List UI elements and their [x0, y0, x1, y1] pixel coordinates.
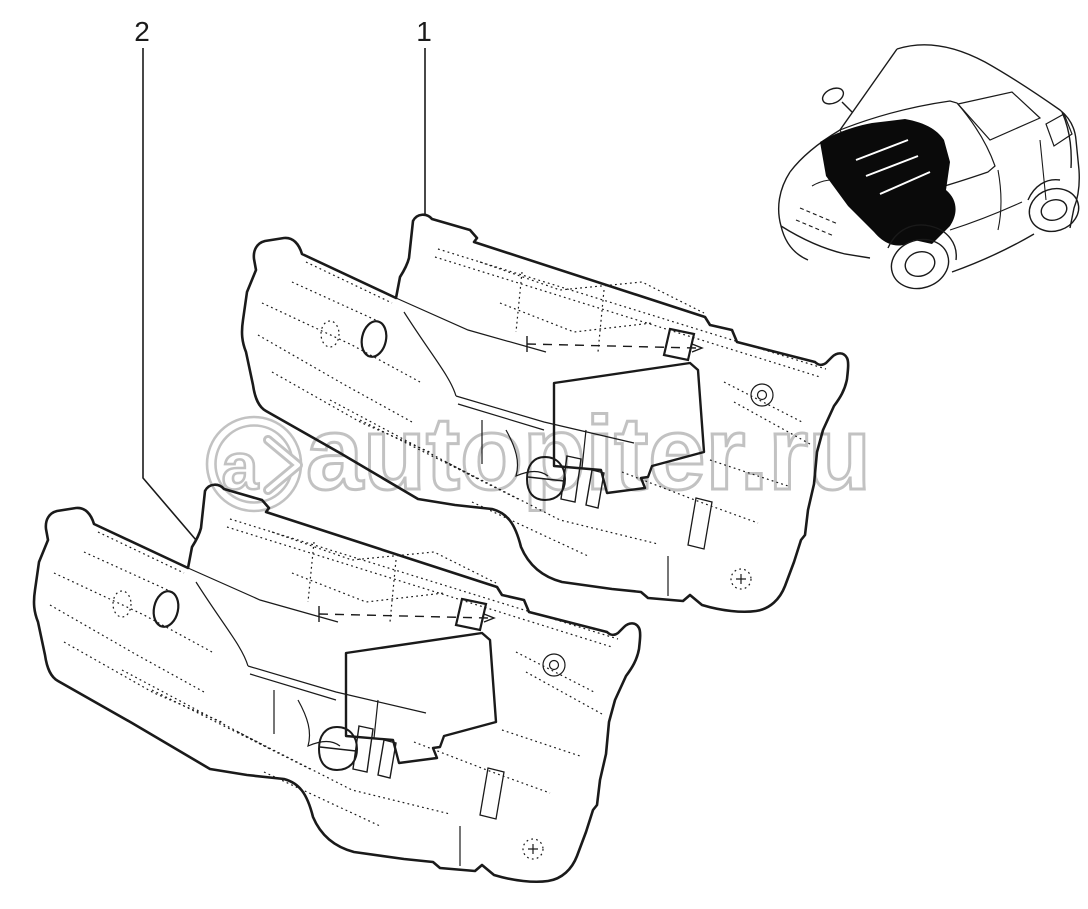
car-rear-wheel [1024, 180, 1085, 238]
insulator-panel-2 [34, 485, 640, 882]
parts-diagram: a autopiter.ru [0, 0, 1088, 909]
car-mirror [820, 85, 846, 107]
callout-1-label[interactable]: 1 [416, 16, 432, 47]
parts-diagram-canvas: a autopiter.ru [0, 0, 1088, 909]
car-locator-illustration [779, 45, 1085, 296]
watermark-site-text: autopiter.ru [306, 396, 871, 512]
watermark-logo-letter: a [222, 429, 260, 503]
callout-1: 1 [416, 16, 432, 214]
watermark: a autopiter.ru [207, 396, 871, 512]
callout-2-leader-line [143, 48, 196, 540]
callout-2: 2 [134, 16, 196, 540]
watermark-chevron-icon [268, 440, 298, 490]
callout-2-label[interactable]: 2 [134, 16, 150, 47]
car-highlight-area [820, 119, 956, 246]
